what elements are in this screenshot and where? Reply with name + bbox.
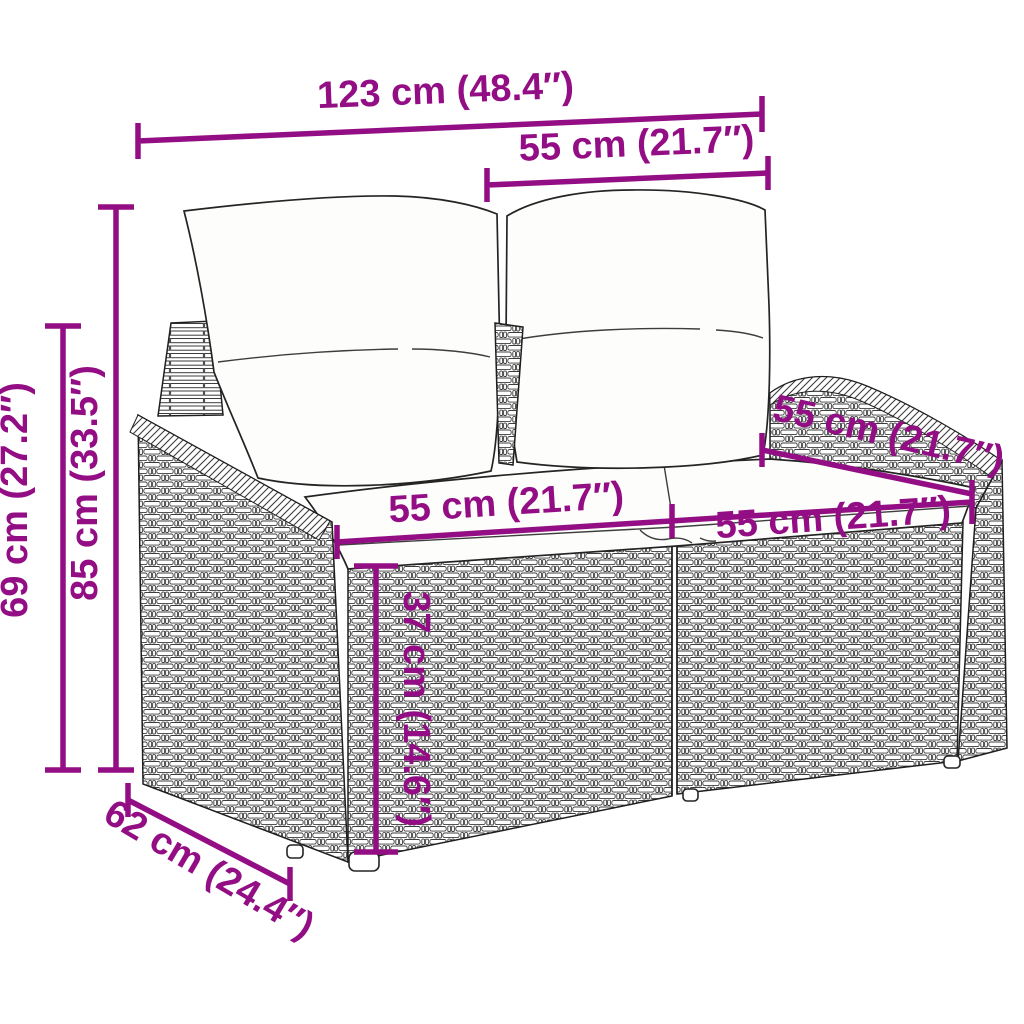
dim-total-width-label: 123 cm (48.4″) [316, 65, 574, 117]
sofa-foot [683, 789, 698, 801]
dimension-diagram-page: 123 cm (48.4″) 55 cm (21.7″) 85 cm (33.5… [0, 0, 1024, 1024]
dim-back-cushion-width-label: 55 cm (21.7″) [518, 118, 755, 170]
dim-total-height-label: 85 cm (33.5″) [64, 365, 106, 601]
seat-modules-seam [672, 545, 677, 796]
dim-armrest-height-label: 69 cm (27.2″) [0, 382, 36, 618]
sofa-foot [287, 845, 303, 858]
front-panel-right-seat [677, 522, 963, 794]
diagram-canvas: 123 cm (48.4″) 55 cm (21.7″) 85 cm (33.5… [0, 0, 1024, 1024]
dim-total-height: 85 cm (33.5″) [64, 207, 134, 770]
dim-seat-height-label: 37 cm (14.6″) [395, 591, 437, 827]
sofa-foot [944, 756, 960, 768]
back-cushion-left [184, 196, 500, 486]
sofa-foot [349, 852, 379, 871]
